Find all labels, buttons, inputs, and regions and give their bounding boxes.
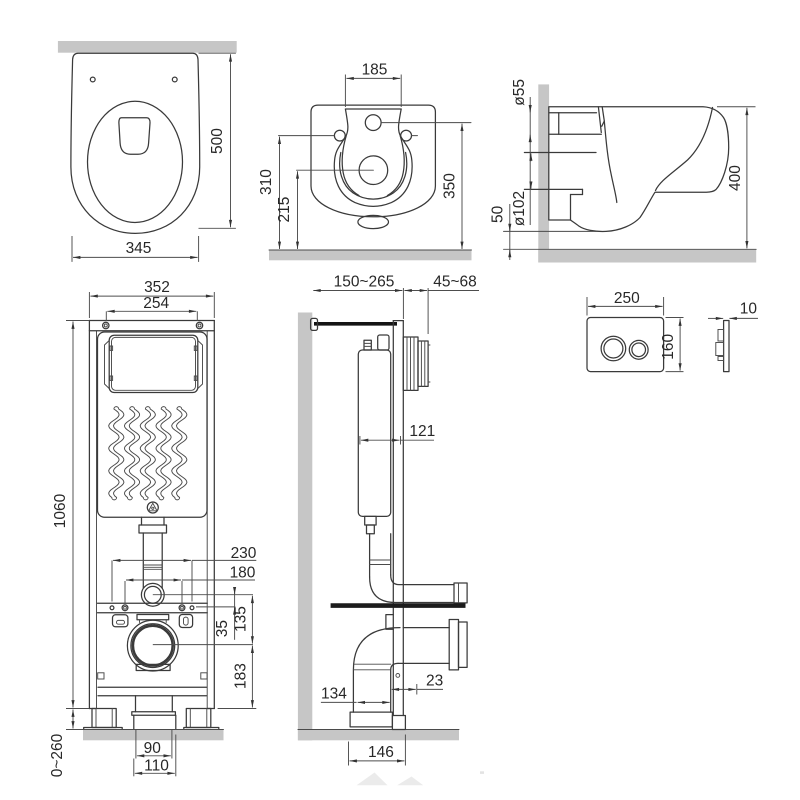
svg-text:0~260: 0~260 bbox=[49, 733, 66, 777]
svg-text:400: 400 bbox=[727, 165, 744, 191]
svg-text:500: 500 bbox=[209, 128, 226, 154]
svg-text:183: 183 bbox=[233, 663, 250, 689]
svg-text:110: 110 bbox=[144, 757, 169, 774]
svg-text:ø55: ø55 bbox=[511, 79, 528, 106]
svg-text:254: 254 bbox=[143, 295, 169, 312]
svg-text:352: 352 bbox=[144, 279, 170, 296]
svg-text:215: 215 bbox=[276, 197, 293, 223]
svg-text:230: 230 bbox=[231, 545, 257, 562]
svg-text:146: 146 bbox=[368, 744, 394, 761]
svg-text:ø102: ø102 bbox=[511, 191, 528, 226]
svg-text:180: 180 bbox=[230, 564, 256, 581]
svg-text:345: 345 bbox=[126, 240, 152, 257]
svg-text:90: 90 bbox=[144, 740, 162, 757]
svg-text:350: 350 bbox=[441, 173, 458, 199]
svg-text:10: 10 bbox=[740, 301, 758, 318]
svg-text:185: 185 bbox=[362, 62, 388, 79]
svg-text:35: 35 bbox=[214, 620, 231, 637]
svg-text:121: 121 bbox=[409, 423, 435, 440]
svg-text:310: 310 bbox=[258, 169, 275, 195]
svg-text:135: 135 bbox=[232, 606, 249, 632]
svg-text:23: 23 bbox=[426, 672, 443, 689]
svg-text:150~265: 150~265 bbox=[334, 274, 395, 291]
svg-text:160: 160 bbox=[660, 333, 677, 359]
svg-text:134: 134 bbox=[321, 686, 347, 703]
svg-text:50: 50 bbox=[490, 205, 507, 223]
svg-text:250: 250 bbox=[614, 290, 640, 307]
svg-text:45~68: 45~68 bbox=[433, 274, 477, 291]
svg-text:1060: 1060 bbox=[52, 493, 69, 528]
